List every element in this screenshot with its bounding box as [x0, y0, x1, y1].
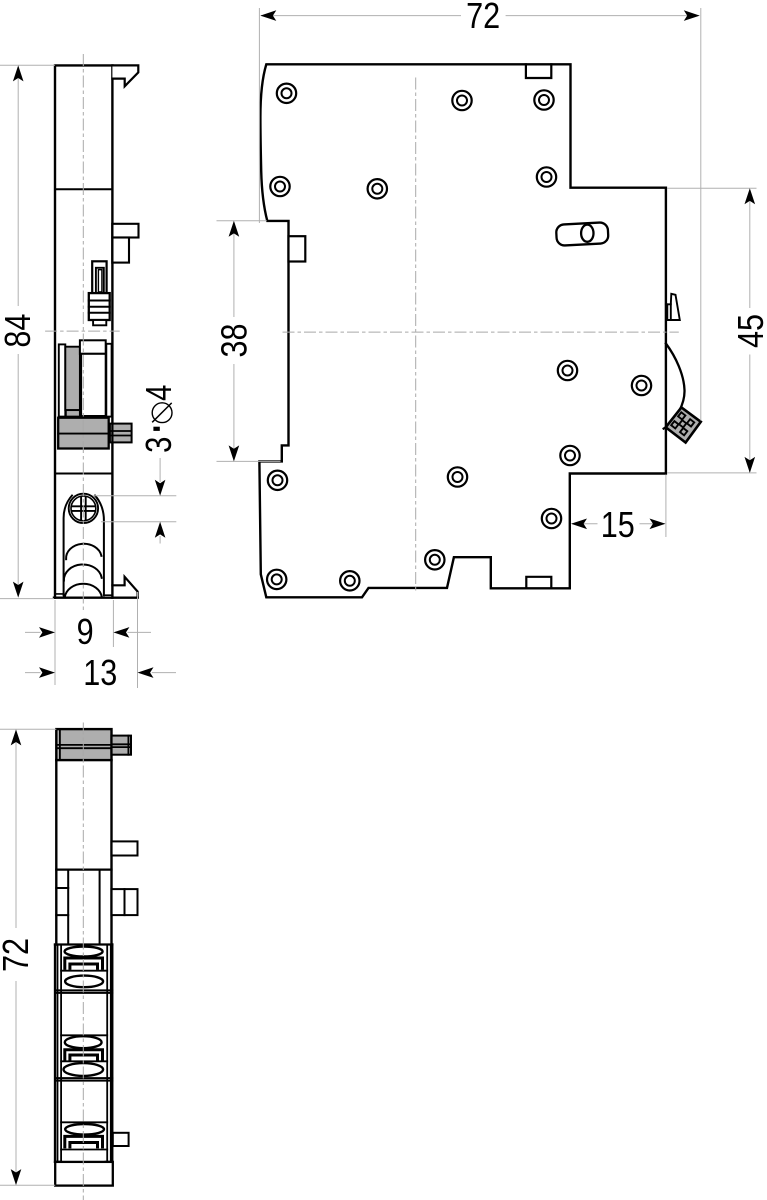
svg-text:9: 9 — [77, 613, 94, 653]
svg-text:15: 15 — [601, 506, 635, 546]
svg-text:45: 45 — [732, 314, 767, 348]
svg-text:72: 72 — [0, 938, 37, 972]
svg-text:3: 3 — [139, 437, 180, 453]
svg-text:72: 72 — [466, 0, 500, 37]
svg-text:38: 38 — [215, 323, 255, 357]
svg-text:13: 13 — [83, 654, 117, 694]
svg-text:84: 84 — [0, 314, 39, 348]
svg-text:4: 4 — [139, 385, 180, 401]
